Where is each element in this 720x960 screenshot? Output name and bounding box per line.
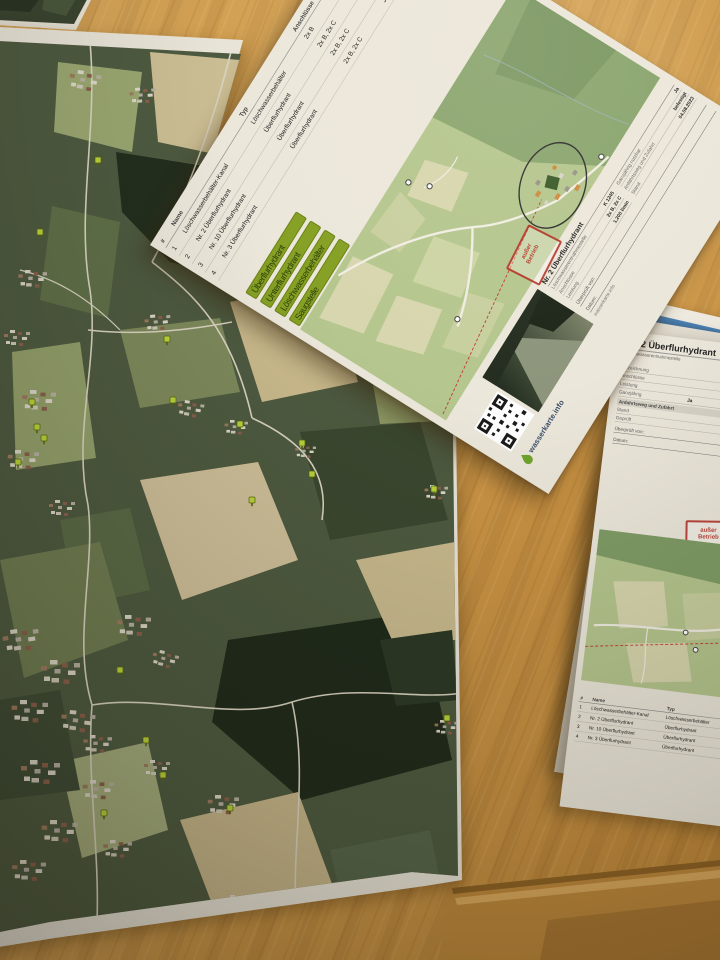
- detail-map: [581, 529, 720, 710]
- field-label: Ganzjährig: [619, 389, 642, 397]
- desk-photo: Maps Nr. 2 Überflurhydrant Löschwasseren…: [0, 0, 720, 960]
- field-label: Leistung: [620, 381, 638, 388]
- water-drop-icon: [519, 451, 534, 465]
- field-label: Geprüft: [616, 415, 632, 422]
- field-value: Ja: [687, 397, 693, 403]
- detail-fields: BezeichnungK 124 Anschlüsse2x B, 2x C Le…: [605, 363, 720, 520]
- field-label: Stand: [617, 406, 630, 413]
- stamp-text: Betrieb: [698, 533, 719, 540]
